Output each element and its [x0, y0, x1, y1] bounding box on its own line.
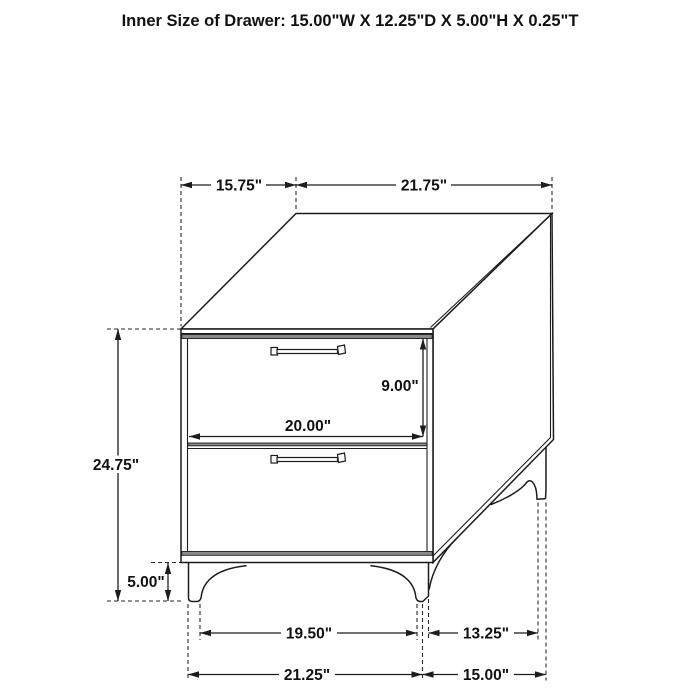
dim-label-side-legs-inner: 13.25": [463, 626, 509, 643]
drawing-canvas: Inner Size of Drawer: 15.00"W X 12.25"D …: [0, 0, 700, 700]
dim-label-front-legs-inner: 19.50": [286, 626, 332, 643]
arrow-up-icon: [165, 563, 171, 574]
dim-label-drawer-width: 20.00": [285, 418, 331, 435]
top-drawer-bottom-band: [188, 443, 427, 446]
front-panel: [181, 329, 433, 563]
dim-base-depth: 15.00": [423, 666, 547, 684]
dim-label-overall-height: 24.75": [93, 457, 139, 474]
arrow-left-icon: [429, 630, 440, 636]
front-right-leg: [371, 563, 429, 602]
dim-base-width: 21.25": [188, 666, 423, 684]
front-left-leg: [189, 563, 247, 602]
dim-leg-height: 5.00": [127, 563, 171, 601]
dimension-diagram: Inner Size of Drawer: 15.00"W X 12.25"D …: [0, 0, 700, 700]
arrow-up-icon: [115, 329, 121, 340]
arrow-down-icon: [115, 590, 121, 601]
arrow-right-icon: [412, 671, 423, 677]
arrow-right-icon: [285, 182, 296, 188]
arrow-left-icon: [200, 630, 211, 636]
top-shadow-band: [182, 335, 432, 339]
handle-bar: [277, 458, 338, 462]
arrow-left-icon: [181, 182, 192, 188]
handle-right-post: [338, 345, 346, 355]
dim-label-drawer-height: 9.00": [381, 378, 419, 395]
dim-label-top-width: 21.75": [401, 178, 447, 195]
dim-top-depth: 15.75": [181, 177, 296, 195]
dim-front-legs-inner: 19.50": [200, 625, 417, 643]
dim-label-top-depth: 15.75": [216, 178, 262, 195]
handle-right-post: [338, 453, 346, 463]
arrow-right-icon: [541, 182, 552, 188]
arrow-right-icon: [406, 630, 417, 636]
dim-top-width: 21.75": [296, 177, 552, 195]
arrow-right-icon: [535, 671, 546, 677]
dim-label-leg-height: 5.00": [127, 574, 165, 591]
arrow-left-icon: [296, 182, 307, 188]
arrow-left-icon: [423, 671, 434, 677]
nightstand-drawing: [181, 214, 554, 602]
dim-overall-height: 24.75": [87, 329, 144, 601]
handle-bar: [277, 350, 338, 354]
arrow-right-icon: [527, 630, 538, 636]
arrow-down-icon: [165, 590, 171, 601]
dim-side-legs-inner: 13.25": [429, 625, 539, 643]
base-shadow-band: [182, 552, 432, 556]
arrow-left-icon: [188, 671, 199, 677]
diagram-title: Inner Size of Drawer: 15.00"W X 12.25"D …: [122, 12, 579, 30]
dim-label-base-depth: 15.00": [463, 667, 509, 684]
dim-label-base-width: 21.25": [284, 667, 330, 684]
